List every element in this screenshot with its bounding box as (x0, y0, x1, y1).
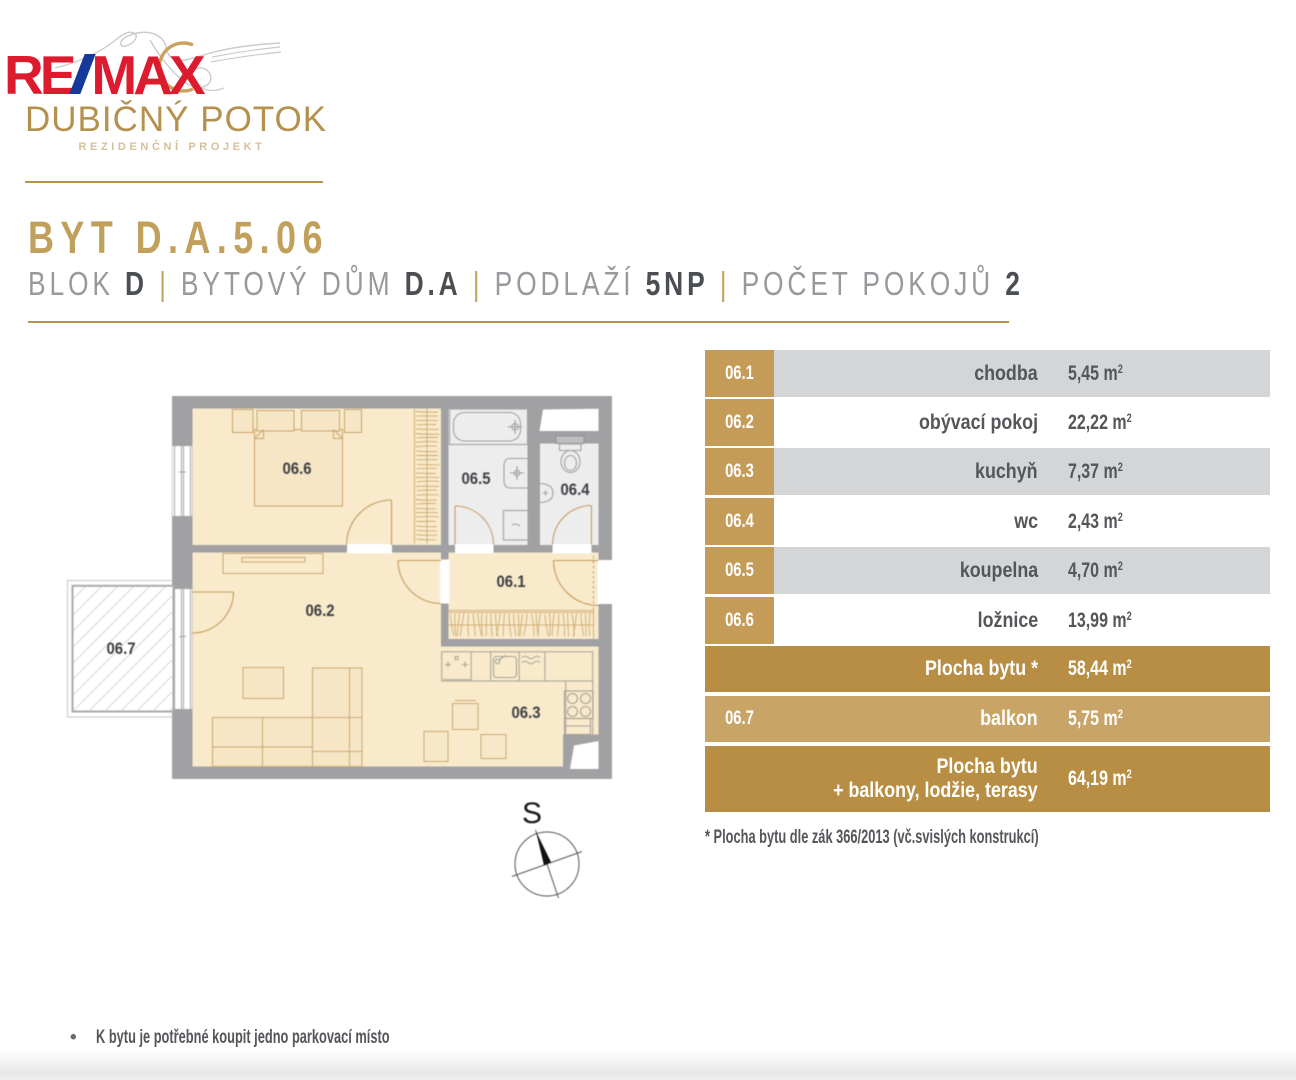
svg-text:06.2: 06.2 (306, 602, 335, 620)
svg-text:06.1: 06.1 (497, 573, 526, 591)
svg-text:06.4: 06.4 (561, 481, 591, 499)
svg-text:06.7: 06.7 (107, 640, 136, 658)
svg-text:06.3: 06.3 (512, 704, 541, 722)
svg-text:06.6: 06.6 (283, 460, 312, 478)
svg-text:S: S (522, 797, 542, 830)
svg-text:06.5: 06.5 (462, 470, 491, 488)
